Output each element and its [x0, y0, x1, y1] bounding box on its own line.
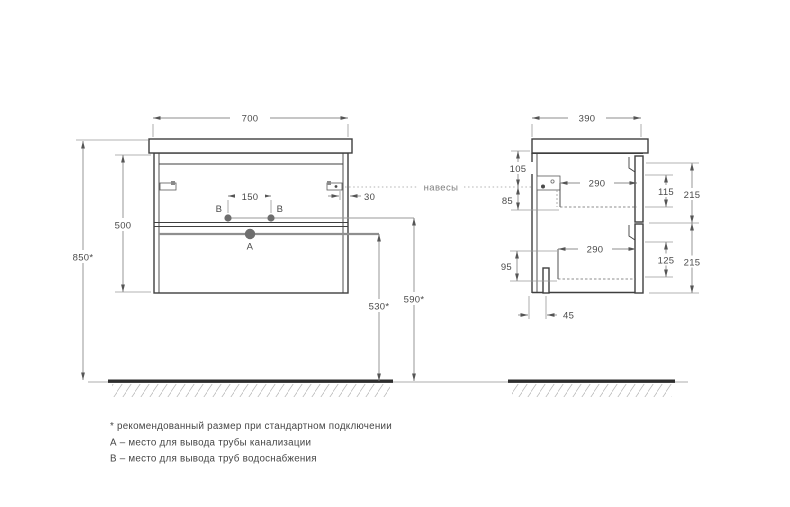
svg-text:150: 150	[242, 192, 259, 203]
dim-carcass-height-500: 500	[105, 155, 151, 292]
point-b-right-label: В	[277, 204, 284, 215]
side-hanger-bracket	[537, 176, 560, 207]
svg-text:30: 30	[364, 192, 375, 203]
point-b-left	[224, 214, 231, 221]
ground-bar-right	[508, 380, 675, 383]
dim-top-drawer-290: 290	[560, 177, 637, 190]
ground-hatch-left	[112, 384, 390, 397]
dim-supply-height-590: 590*	[396, 218, 432, 381]
svg-text:850*: 850*	[73, 253, 94, 264]
point-b-left-label: В	[216, 204, 223, 215]
side-view	[532, 139, 648, 293]
point-a-label: А	[247, 242, 254, 253]
front-countertop	[149, 139, 352, 153]
dim-hanger-drop-85: 85	[502, 187, 559, 210]
front-carcass	[154, 153, 348, 293]
footnotes: * рекомендованный размер при стандартном…	[110, 421, 392, 465]
svg-text:500: 500	[115, 221, 132, 232]
svg-text:215: 215	[684, 190, 701, 201]
ground-hatch-right	[512, 384, 672, 397]
dim-bottom-inner-125: 125	[645, 242, 681, 277]
footnote-point-b: В – место для вывода труб водоснабжения	[110, 454, 317, 465]
svg-text:590*: 590*	[404, 295, 425, 306]
side-drawer-front-bottom	[629, 224, 643, 293]
dim-hanger-top-105: 105	[503, 151, 533, 187]
svg-text:105: 105	[510, 164, 527, 175]
hangers-label: навесы	[424, 183, 459, 194]
svg-text:95: 95	[501, 262, 512, 273]
ground	[88, 380, 688, 398]
point-b-right	[267, 214, 274, 221]
footnote-recommended-size: * рекомендованный размер при стандартном…	[110, 421, 392, 432]
dim-drain-height-530: 530*	[361, 234, 397, 381]
side-drawer-front-top	[629, 156, 643, 222]
dim-bottom-drawer-290: 290	[558, 243, 636, 256]
svg-text:85: 85	[502, 196, 513, 207]
svg-text:125: 125	[658, 256, 675, 267]
point-a	[245, 229, 255, 239]
vanity-dimension-drawing: В В А 700 500 850*	[0, 0, 790, 507]
dim-drain-offset-45: 45	[518, 296, 574, 322]
drain-pipe-slot	[543, 268, 549, 293]
svg-text:45: 45	[563, 311, 574, 322]
svg-text:390: 390	[579, 114, 596, 125]
dim-width-700: 700	[153, 111, 348, 137]
side-countertop	[532, 139, 648, 153]
svg-text:290: 290	[589, 179, 606, 190]
svg-text:215: 215	[684, 258, 701, 269]
technical-drawing-page: В В А 700 500 850*	[0, 0, 790, 507]
dim-total-height-850: 850*	[63, 140, 148, 380]
svg-text:115: 115	[658, 187, 674, 198]
svg-text:700: 700	[242, 114, 259, 125]
dim-depth-390: 390	[532, 111, 641, 137]
svg-text:530*: 530*	[369, 302, 390, 313]
front-view: В В А	[149, 139, 414, 293]
dim-top-inner-115: 115	[645, 175, 681, 207]
footnote-point-a: А – место для вывода трубы канализации	[110, 438, 311, 449]
svg-text:290: 290	[587, 245, 604, 256]
ground-bar-left	[108, 380, 393, 383]
